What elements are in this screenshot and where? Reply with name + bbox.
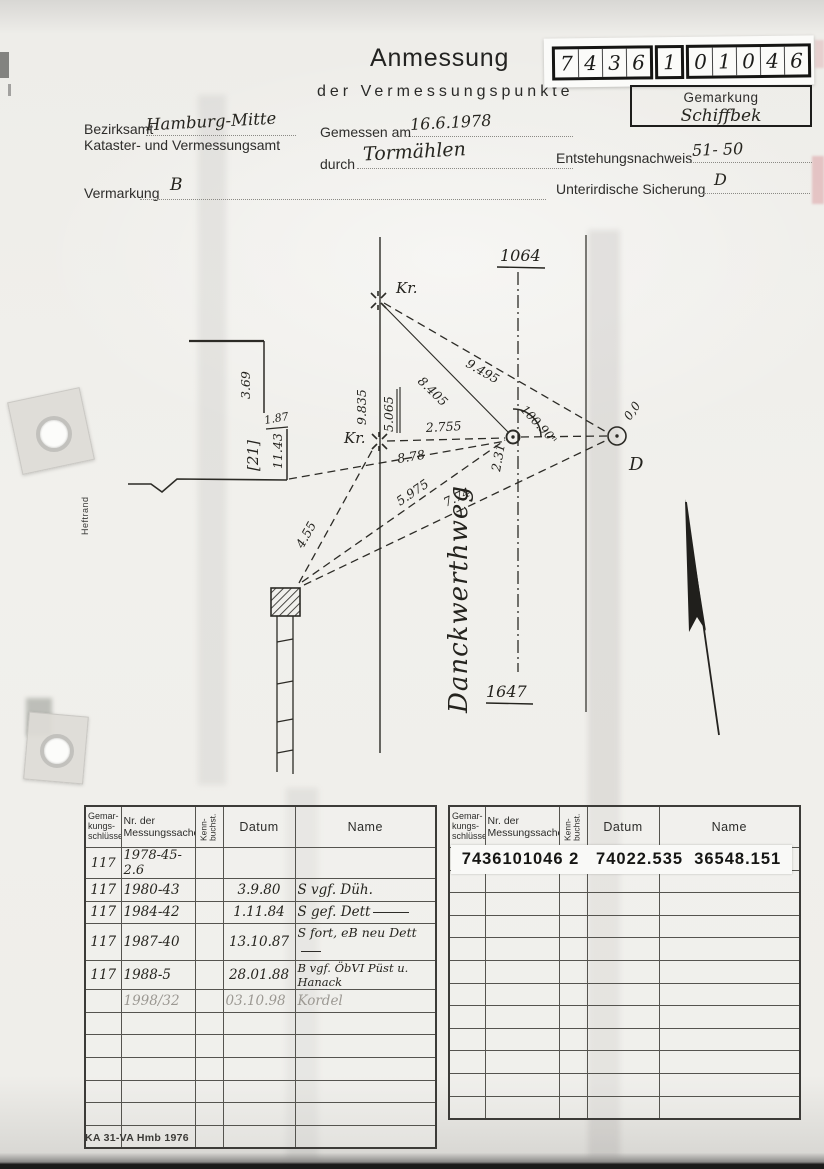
table-row [449, 915, 800, 938]
measure-8-78: 8.78 [396, 447, 426, 466]
col-name: Name [659, 806, 800, 848]
col-kennbuchst: Kenn- buchst. [195, 806, 223, 848]
hatched-post [271, 588, 300, 616]
measure-2-31: 2.31 [488, 442, 508, 473]
table-row [449, 983, 800, 1006]
table-row: 1998/32 03.10.98 Kordel [85, 990, 436, 1013]
table-row: 117 1987-40 13.10.87 S fort, eB neu Dett [85, 924, 436, 961]
measure-1-87: 1.87 [263, 410, 289, 427]
measure-5-975: 5.975 [393, 476, 431, 508]
angle-label: 100.90ⁿ [518, 402, 560, 446]
header-row: Gemar- kungs- schlüssel Nr. der Messungs… [449, 806, 800, 848]
col-messungssache: Nr. der Messungssache [485, 806, 559, 848]
table-row: 117 1988-5 28.01.88 B vgf. ÖbVI Püst u. … [85, 961, 436, 990]
header-row: Gemar- kungs- schlüssel Nr. der Messungs… [85, 806, 436, 848]
col-datum: Datum [587, 806, 659, 848]
parcel-number-bottom: 1647 [486, 682, 528, 701]
table-row [449, 1028, 800, 1051]
parcel-number-top: 1064 [500, 246, 541, 265]
survey-point-kr-top [371, 291, 386, 310]
table-row: 117 1978-45-2.6 [85, 848, 436, 879]
scanned-survey-form: Heftrand Anmessung der Vermessungspunkte… [0, 0, 824, 1169]
hatched-post-and-fence [271, 588, 300, 774]
journal-table-left: Gemar- kungs- schlüssel Nr. der Messungs… [84, 805, 437, 1149]
table-row [85, 1080, 436, 1103]
measure-9-835: 9.835 [354, 389, 369, 425]
col-messungssache: Nr. der Messungssache [121, 806, 195, 848]
kr-label-mid: Kr. [343, 429, 366, 447]
point-d-label: D [628, 454, 644, 475]
table-row [85, 1057, 436, 1080]
north-arrow-head [685, 499, 706, 632]
col-gemarkung: Gemar- kungs- schlüssel [449, 806, 485, 848]
measure-3-69: 3.69 [238, 371, 253, 399]
measure-0-0: 0,0 [621, 399, 644, 423]
table-row: 117 1980-43 3.9.80 S vgf. Düh. [85, 879, 436, 902]
col-name: Name [295, 806, 436, 848]
col-gemarkung: Gemar- kungs- schlüssel [85, 806, 121, 848]
table-row [85, 1103, 436, 1126]
street-name: Danckwerthweg [444, 485, 474, 714]
col-kennbuchst: Kenn- buchst. [559, 806, 587, 848]
north-arrow [685, 499, 719, 735]
table-row: 117 1984-42 1.11.84 S gef. Dett [85, 901, 436, 924]
table-row [85, 1035, 436, 1058]
table-row [449, 893, 800, 916]
pen-flourish [373, 912, 409, 913]
survey-point-d-dot [615, 434, 618, 437]
measure-5-065: 5.065 [381, 396, 396, 432]
measure-9-495: 9.495 [464, 356, 503, 387]
measure-8-405: 8.405 [415, 373, 451, 409]
measure-11-43: 11.43 [270, 433, 285, 469]
table-row [449, 960, 800, 983]
table-row [449, 1006, 800, 1029]
table-row [449, 1073, 800, 1096]
survey-point-center-dot [511, 435, 514, 438]
kr-label-top: Kr. [395, 279, 418, 297]
col-datum: Datum [223, 806, 295, 848]
pen-flourish [301, 951, 321, 952]
table-row [85, 1012, 436, 1035]
form-footer-code: KA 31-VA Hmb 1976 [85, 1132, 189, 1144]
table-row [449, 1051, 800, 1074]
measure-21: [21] [244, 440, 262, 471]
measure-4-55: 4.55 [292, 519, 319, 552]
measure-2-755: 2.755 [424, 418, 462, 435]
table-row [449, 938, 800, 961]
table-row [449, 1096, 800, 1119]
coordinate-sticker: 7436101046 2 74022.535 36548.151 [451, 845, 792, 874]
